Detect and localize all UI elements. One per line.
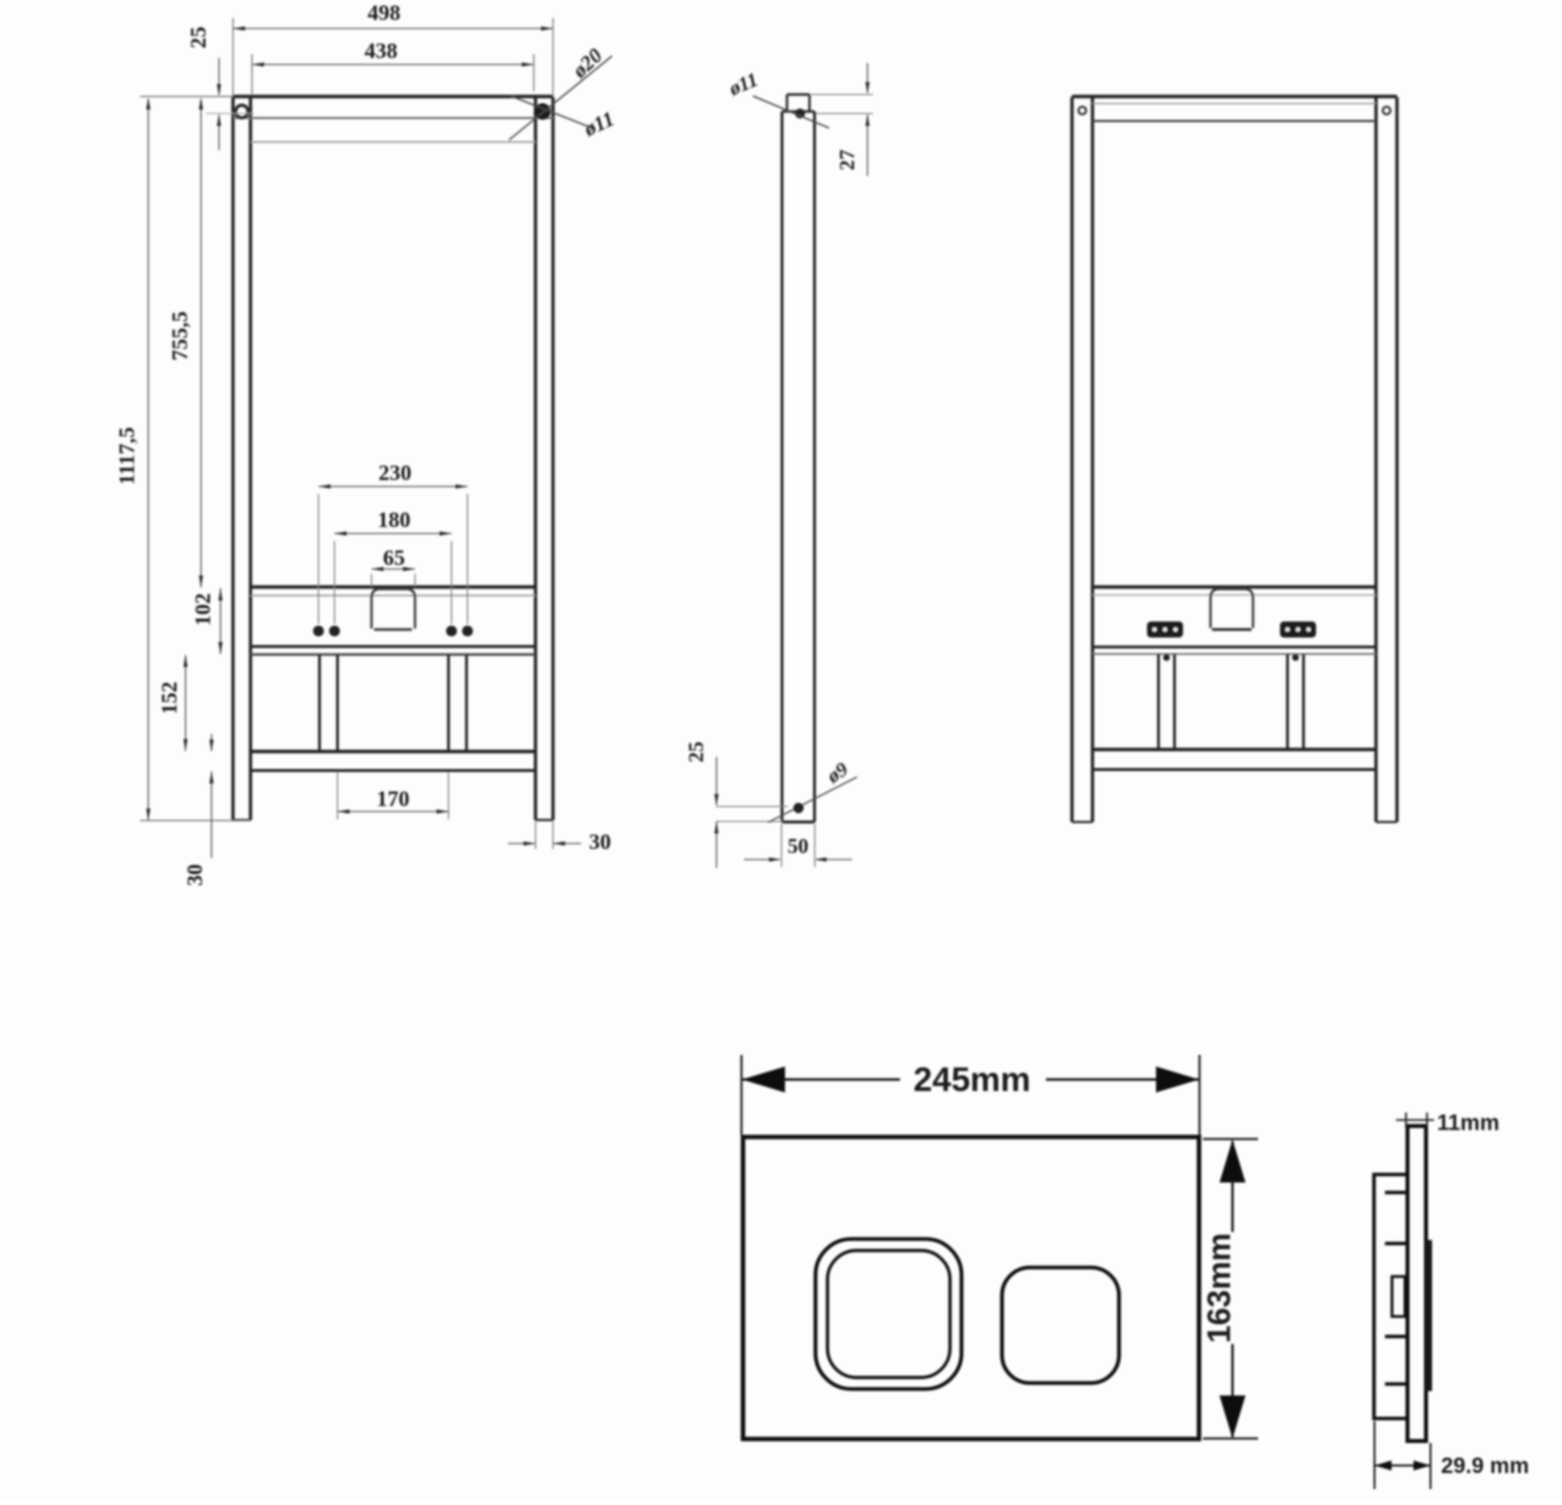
svg-text:498: 498 — [368, 0, 401, 25]
svg-text:180: 180 — [378, 507, 411, 532]
svg-text:230: 230 — [379, 460, 412, 485]
svg-text:170: 170 — [377, 786, 410, 811]
svg-text:50: 50 — [788, 834, 809, 858]
svg-text:163mm: 163mm — [1201, 1233, 1237, 1343]
svg-text:11mm: 11mm — [1437, 1110, 1499, 1135]
svg-text:152: 152 — [157, 682, 182, 715]
svg-text:755,5: 755,5 — [167, 311, 192, 361]
svg-text:65: 65 — [383, 545, 405, 570]
svg-text:30: 30 — [182, 864, 207, 886]
svg-text:29.9 mm: 29.9 mm — [1441, 1453, 1529, 1478]
svg-text:245mm: 245mm — [913, 1061, 1030, 1099]
svg-text:25: 25 — [684, 742, 708, 763]
svg-text:1117,5: 1117,5 — [114, 427, 139, 485]
svg-text:27: 27 — [835, 150, 859, 171]
svg-text:30: 30 — [589, 829, 611, 854]
svg-text:25: 25 — [186, 27, 211, 49]
svg-text:438: 438 — [365, 38, 398, 63]
svg-text:102: 102 — [190, 593, 215, 626]
